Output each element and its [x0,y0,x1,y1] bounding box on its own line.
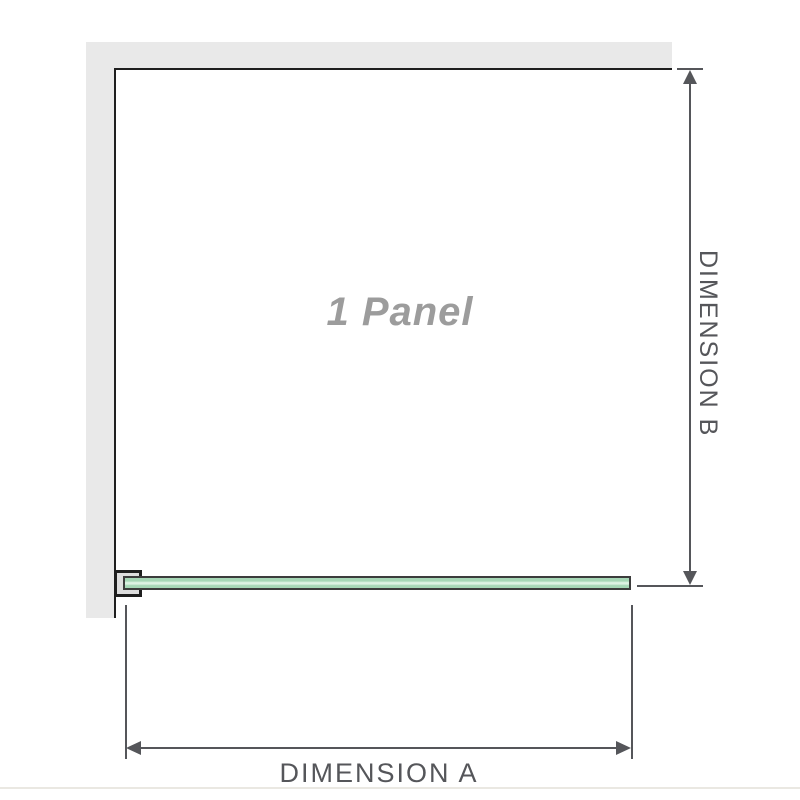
panel-dimension-diagram: DIMENSION B DIMENSION A 1 Panel [0,0,800,800]
dimension-a-extension-right [631,605,633,759]
wall-inner-edge-top [114,68,672,70]
arrow-up-icon [683,70,697,84]
arrow-left-icon [126,741,141,755]
wall-top [86,42,672,68]
dimension-b-label: DIMENSION B [693,250,722,420]
arrow-right-icon [616,741,631,755]
arrow-down-icon [683,571,697,585]
dimension-a-line [130,747,627,749]
dimension-a-label: DIMENSION A [0,758,758,789]
glass-panel-bar [123,576,631,590]
dimension-b-line [689,74,691,578]
wall-left [86,42,114,618]
dimension-a-extension-left [125,605,127,759]
wall-inner-edge-left [114,68,116,618]
baseline-rule [0,787,800,789]
panel-count-label: 1 Panel [250,290,550,335]
dimension-b-tick-bottom [637,585,703,587]
